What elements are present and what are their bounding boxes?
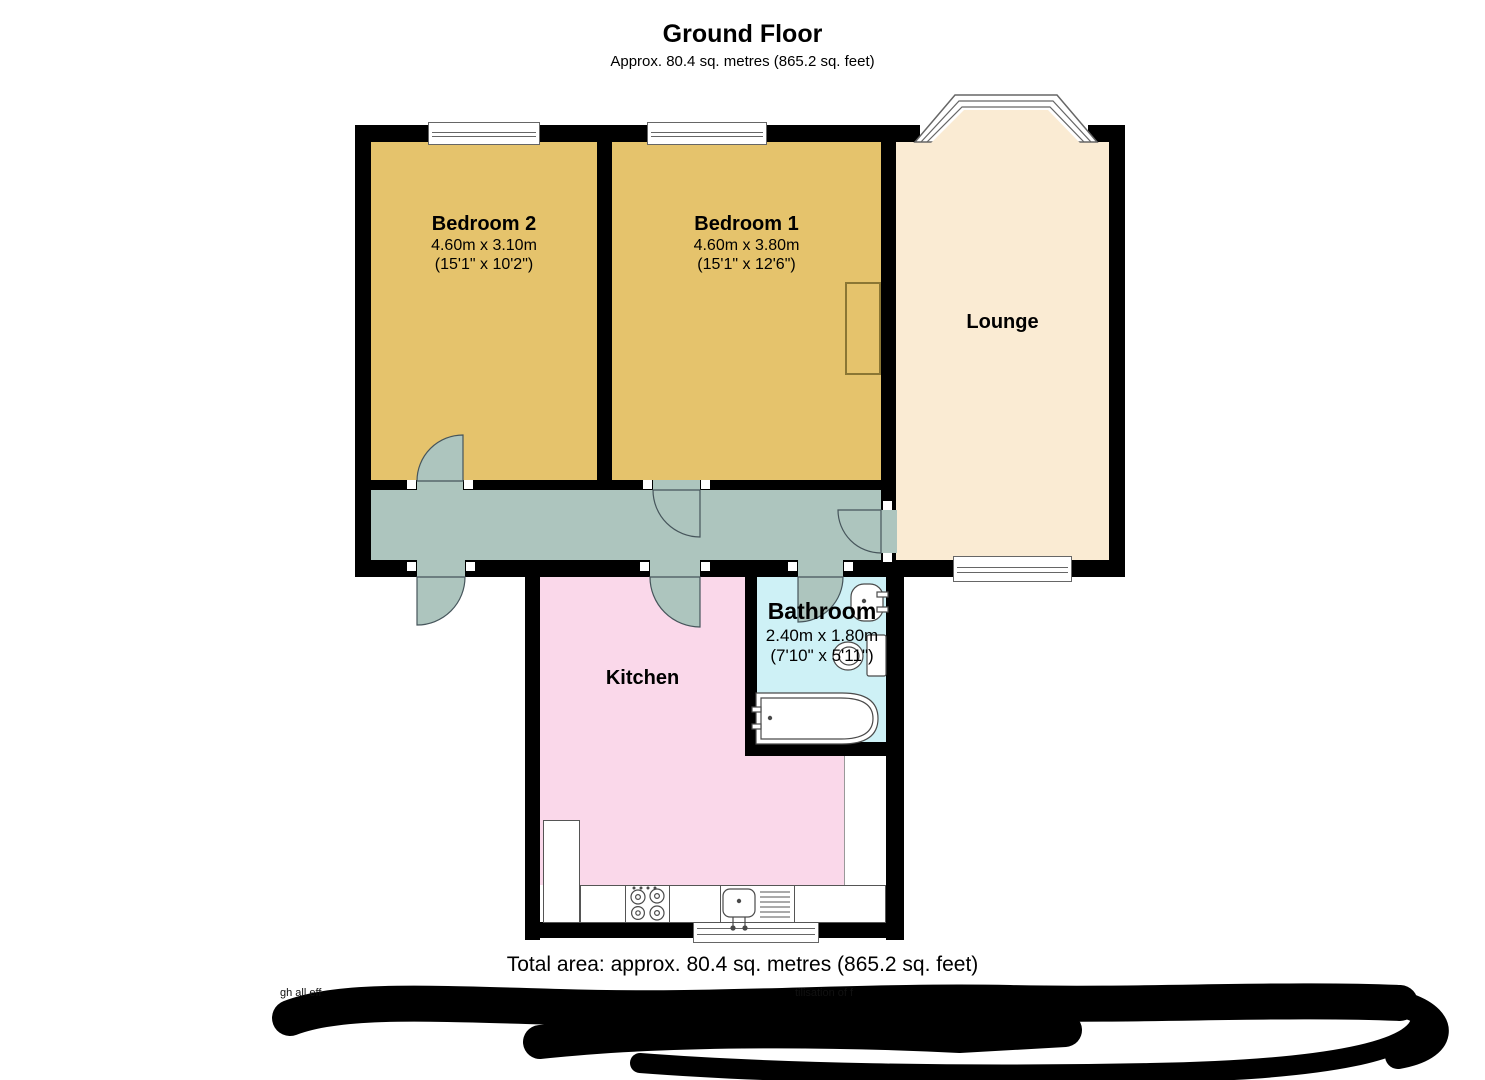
front-door-swing (417, 577, 465, 625)
bathroom-label: Bathroom 2.40m x 1.80m (7'10" x 5'11") (742, 598, 902, 666)
bathtub-drain-icon (768, 716, 771, 719)
hob-icon (631, 887, 664, 920)
bed1-door-gap (653, 480, 700, 491)
bed2-door-gap (417, 480, 463, 491)
kitchen-fixtures (631, 887, 790, 930)
bathroom-door-gap (798, 560, 843, 578)
redacted-text-fragment-right: tilisation of f (795, 987, 853, 999)
kitchen-sink-icon (723, 889, 755, 930)
kitchen-door-gap (650, 560, 700, 578)
drainer-icon (760, 892, 790, 917)
lounge-door-swing (838, 510, 881, 553)
lounge-bay-window (915, 95, 1097, 143)
plan-overlay (0, 0, 1485, 1080)
lounge-label: Lounge (896, 310, 1109, 334)
lounge-door-gap (881, 510, 897, 553)
bed1-door-swing (653, 490, 700, 537)
redacted-text-fragment-left: gh all eff (280, 987, 321, 999)
basin-tap-icon (877, 592, 888, 597)
bedroom1-label: Bedroom 1 4.60m x 3.80m (15'1" x 12'6") (612, 212, 881, 274)
bathtub-tap-icon (752, 724, 761, 729)
total-area-text: Total area: approx. 80.4 sq. metres (865… (0, 953, 1485, 977)
floorplan-canvas: Ground Floor Approx. 80.4 sq. metres (86… (0, 0, 1485, 1080)
kitchen-door-swing (650, 577, 700, 627)
bedroom2-label: Bedroom 2 4.60m x 3.10m (15'1" x 10'2") (371, 212, 597, 274)
redaction-scribble (290, 1001, 1436, 1074)
bathtub-tap-icon (752, 707, 761, 712)
bed2-door-swing (417, 435, 463, 481)
front-door-gap (417, 560, 465, 578)
kitchen-label: Kitchen (540, 666, 745, 690)
